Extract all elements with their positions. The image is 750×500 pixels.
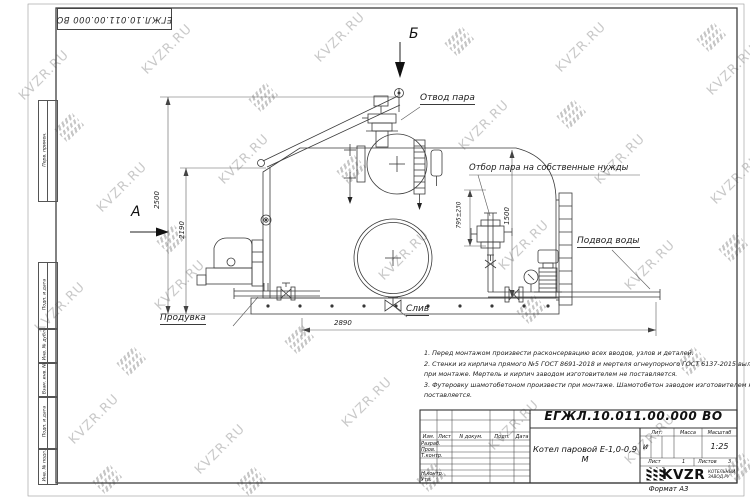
note-line: 2. Стенки из кирпича прямого №5 ГОСТ 869… bbox=[424, 359, 736, 370]
tb-sheet-value: 1 bbox=[682, 459, 685, 465]
tb-row-utv: Утв. bbox=[421, 477, 432, 483]
frame-column-perv-primen: Перв. примен. bbox=[38, 100, 58, 202]
burner bbox=[197, 238, 263, 286]
technical-notes: 1. Перед монтажом произвести расконсерва… bbox=[424, 348, 736, 401]
format-label: Формат А3 bbox=[600, 485, 737, 493]
tb-header-podp: Подп. bbox=[490, 434, 514, 440]
label-drain: Слив bbox=[406, 304, 429, 316]
note-line: при монтаже. Мертель и кирпич заводом из… bbox=[424, 369, 736, 380]
tb-lit-label: Лит. bbox=[640, 430, 674, 436]
drain-valve bbox=[385, 297, 401, 311]
note-line: 3. Футеровку шамотобетоном произвести пр… bbox=[424, 380, 736, 391]
tb-sheets-label: Листов bbox=[698, 459, 717, 465]
label-steam-own-needs: Отбор пара на собственные нужды bbox=[469, 163, 628, 173]
dimension-height-body: 2190 bbox=[178, 221, 186, 239]
tb-sheet-label: Лист bbox=[648, 459, 661, 465]
tb-header-izm: Изм. bbox=[420, 434, 437, 440]
product-name: Котел паровой Е-1,0-0,9 М bbox=[531, 444, 639, 464]
top-stamp-text: ЕГЖЛ.10.011.00.000 ВО bbox=[56, 14, 172, 24]
blowdown-pipe bbox=[234, 283, 320, 300]
view-a-arrow bbox=[130, 228, 169, 237]
doc-number: ЕГЖЛ.10.011.00.000 ВО bbox=[530, 409, 737, 423]
tb-lit-value: и bbox=[640, 442, 651, 451]
tb-row-tkontr: Т.контр. bbox=[421, 453, 443, 459]
label-water-inlet: Подвод воды bbox=[577, 236, 640, 248]
tb-scale-value: 1:25 bbox=[702, 442, 737, 451]
dimension-drum-height: 1500 bbox=[503, 207, 511, 225]
label-blowdown: Продувка bbox=[160, 313, 206, 325]
frame-column-podp-data-1: Подп. и дата bbox=[38, 262, 58, 330]
tb-sheets-value: 3 bbox=[728, 459, 731, 465]
tb-header-data: Дата bbox=[514, 434, 530, 440]
note-line: поставляется. bbox=[424, 390, 736, 401]
view-a-label: А bbox=[131, 204, 141, 220]
dimension-lines bbox=[160, 97, 656, 336]
kvzr-logo-text: KVZR bbox=[662, 467, 705, 483]
dimension-height-total: 2500 bbox=[153, 191, 161, 209]
dimension-nozzle-height: 795±230 bbox=[457, 202, 463, 229]
tb-massa-label: Масса bbox=[674, 430, 702, 436]
section-b-arrow bbox=[395, 42, 405, 78]
note-line: 1. Перед монтажом произвести расконсерва… bbox=[424, 348, 736, 359]
top-designation-stamp: ЕГЖЛ.10.011.00.000 ВО bbox=[57, 8, 172, 30]
frame-column-podp-data-2: Подп. и дата bbox=[38, 396, 58, 450]
drawing-sheet: KVZR.RUKVZR.RUKVZR.RUKVZR.RUKVZR.RUKVZR.… bbox=[0, 0, 750, 500]
tb-masshtab-label: Масштаб bbox=[702, 430, 737, 436]
tb-header-list: Лист bbox=[437, 434, 452, 440]
frame-column-inv-dubl: Инв. № дубл. bbox=[38, 328, 58, 364]
steam-drum bbox=[344, 134, 442, 210]
frame-column-inv-podl: Инв. № подл. bbox=[38, 448, 58, 485]
kvzr-logo-sub2: ЗАВОД.РУ bbox=[708, 475, 729, 480]
feedwater-piping bbox=[471, 213, 660, 302]
boiler-technical-drawing bbox=[0, 0, 750, 500]
label-steam-outlet: Отвод пара bbox=[420, 93, 475, 105]
dimension-length: 2890 bbox=[334, 319, 352, 327]
tb-header-ndokum: N докум. bbox=[452, 434, 490, 440]
davit-arm bbox=[258, 88, 404, 167]
frame-column-vzam-inv: Взам. инв. № bbox=[38, 362, 58, 398]
view-b-label: Б bbox=[409, 26, 419, 42]
rear-ladder bbox=[556, 193, 572, 305]
